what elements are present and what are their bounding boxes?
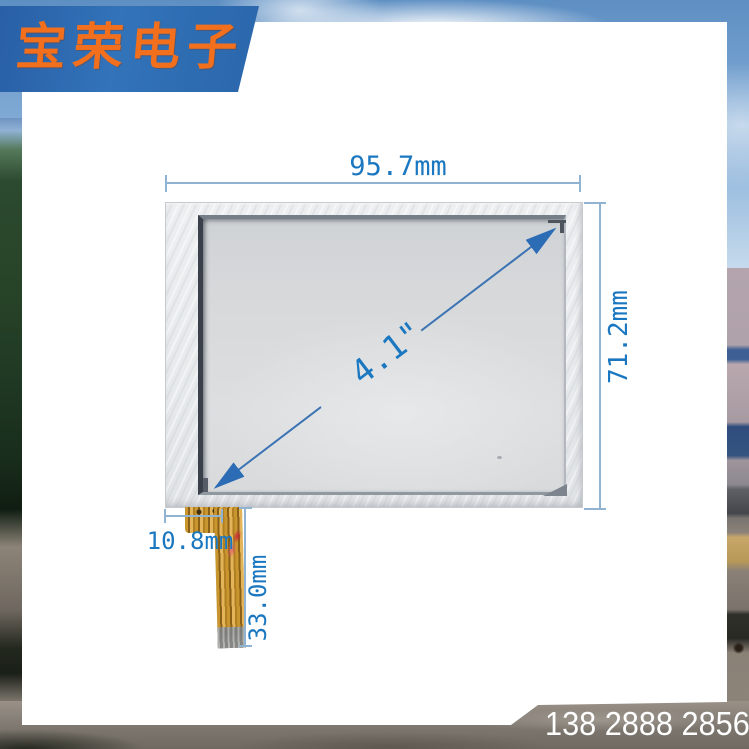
height-dimension-tick (584, 202, 606, 204)
width-dimension-label: 95.7mm (328, 151, 468, 182)
cable-length-dimension-tick (239, 507, 252, 509)
logo-banner: 宝荣电子 (0, 6, 259, 92)
logo-text: 宝荣电子 (0, 22, 246, 76)
cable-length-dimension-tick (239, 645, 252, 647)
bezel-corner-mark (560, 220, 564, 233)
width-dimension-tick (165, 175, 167, 192)
cable-offset-dimension-line (165, 515, 223, 517)
cable-offset-dimension-tick (221, 509, 223, 523)
phone-number: 138 2888 2856 (545, 704, 731, 744)
product-photo: 宝荣电子 95.7mm 71.2mm 10.8mm 33.0mm 4.1" 13… (0, 0, 749, 749)
cable-offset-dimension-tick (164, 509, 166, 523)
height-dimension-line (599, 203, 601, 509)
cable-length-dimension-label: 33.0mm (245, 553, 271, 643)
height-dimension-tick (584, 508, 606, 510)
width-dimension-line (166, 182, 580, 184)
width-dimension-tick (579, 175, 581, 192)
screen-speck (497, 456, 502, 459)
cable-offset-dimension-label: 10.8mm (138, 527, 242, 555)
photo-border-building (726, 268, 749, 749)
height-dimension-label: 71.2mm (606, 294, 632, 384)
bezel-corner-mark (203, 478, 208, 492)
